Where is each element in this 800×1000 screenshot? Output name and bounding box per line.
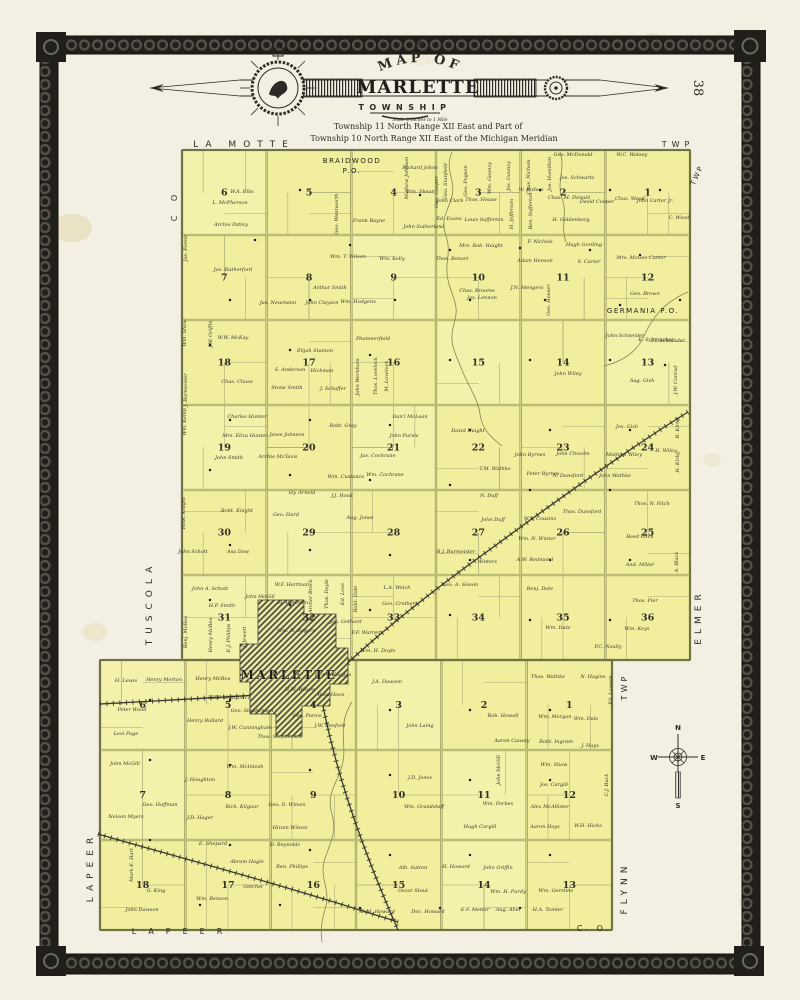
owner-name-label: Dan'l McLean [391, 414, 427, 420]
paper-stain [703, 453, 721, 467]
owner-name-label: John Duff [480, 517, 506, 523]
section-number: 36 [641, 613, 655, 624]
owner-name-label: Jos. Schwartz [559, 175, 595, 181]
owner-name-label: S. Anderson [275, 367, 306, 373]
section-number: 34 [472, 613, 486, 624]
owner-name-label: Aug. Abel [495, 907, 521, 913]
owner-name-label: W.W. McKay [218, 335, 249, 341]
house-dot [389, 424, 391, 426]
owner-name-label: Jos. Forest [183, 234, 189, 263]
owner-name-label: L.A. Welch [382, 585, 410, 591]
section-number: 8 [225, 790, 232, 801]
owner-name-label: Aug. Jones [346, 515, 374, 521]
owner-name-label: B. Kirby [675, 418, 681, 440]
owner-name-label: Thos. House [465, 197, 496, 203]
house-dot [529, 619, 531, 621]
owner-name-label: Stone Smith [271, 385, 302, 391]
edge-label: FLYNN [620, 862, 630, 915]
owner-name-label: John McGill [244, 594, 275, 600]
house-dot [529, 359, 531, 361]
section-number: 30 [218, 528, 232, 539]
section-number: 14 [556, 358, 570, 369]
owner-name-label: D.M. Howard [360, 909, 395, 915]
edge-label: C O [170, 189, 179, 221]
owner-name-label: A. Black [674, 552, 680, 574]
owner-name-label: Geo. Hurd [273, 512, 299, 518]
owner-name-label: John Laing [405, 723, 433, 729]
house-dot [149, 759, 151, 761]
owner-name-label: Wm. Keys [624, 626, 649, 632]
owner-name-label: Geo. Pierce [292, 713, 321, 719]
owner-name-label: Mrs. Rob. Haight [458, 243, 504, 249]
owner-name-label: Archie McTavis [257, 454, 297, 460]
owner-name-label: John Wathke [598, 473, 631, 479]
section-number: 9 [310, 790, 317, 801]
house-dot [619, 304, 621, 306]
section-number: 27 [472, 528, 485, 539]
owner-name-label: Henry Morton [145, 677, 182, 683]
owner-name-label: E.J. Phillips [226, 623, 232, 653]
owner-name-label: Thos. Lovelock [373, 357, 379, 395]
house-dot [609, 489, 611, 491]
owner-name-label: Wm. T. Wilson [330, 254, 366, 260]
house-dot [209, 599, 211, 601]
owner-name-label: Archie Pattey [213, 222, 248, 228]
house-dot [519, 247, 521, 249]
house-dot [609, 619, 611, 621]
house-dot [289, 474, 291, 476]
house-dot [609, 189, 611, 191]
house-dot [389, 854, 391, 856]
owner-name-label: Thos. Dunsford [563, 509, 602, 515]
owner-name-label: John Clark [436, 198, 464, 204]
house-dot [679, 299, 681, 301]
edge-label: LAPEER [86, 832, 96, 902]
owner-name-label: Mrs. Eliza Hunter [221, 433, 268, 439]
owner-name-label: Arthur Smith [312, 285, 346, 291]
owner-name-label: Jos. Hamilton [547, 157, 553, 192]
owner-name-label: J. Hays [580, 743, 599, 749]
owner-name-label: Mathew Johnson [404, 157, 410, 200]
owner-name-label: Ed. Lawson [608, 675, 614, 705]
owner-name-label: John Schneider [605, 333, 645, 339]
house-dot [664, 364, 666, 366]
section-number: 35 [556, 613, 569, 624]
owner-name-label: J. Burmeister [183, 373, 189, 408]
house-dot [309, 419, 311, 421]
owner-name-label: W.C. Watsey [617, 152, 648, 158]
section-number: 33 [387, 613, 400, 624]
owner-name-label: H. Lewis [114, 678, 138, 684]
owner-name-label: Elijah Stanton [296, 348, 333, 354]
section-number: 3 [395, 700, 402, 711]
owner-name-label: Mark E. Hart [129, 847, 135, 883]
owner-name-label: Aug. Gish [629, 378, 655, 384]
owner-name-label: J. Jewett [242, 626, 248, 649]
compass-north-label: N [675, 724, 681, 732]
section-number: 2 [481, 700, 488, 711]
owner-name-label: Archer Brock [308, 579, 314, 614]
owner-name-label: Geo. Houser [546, 284, 552, 316]
owner-name-label: Wm. Shear [406, 189, 435, 195]
owner-name-label: John Smith [214, 455, 243, 461]
owner-name-label: C. Wood [669, 215, 690, 221]
owner-name-label: H.W. Wilson [284, 687, 315, 693]
section-number: 5 [306, 188, 313, 199]
owner-name-label: W.F. Hartman [275, 582, 309, 588]
owner-name-label: Jas. Newmann [259, 300, 297, 306]
owner-name-label: John Carter Jr. [636, 198, 674, 204]
edge-label: ELMER [694, 589, 704, 644]
owner-name-label: Mrs. McGee Carter [615, 255, 666, 261]
house-dot [394, 299, 396, 301]
owner-name-label: Ross Hoon [316, 692, 344, 698]
owner-name-label: Chas. Chase [221, 379, 252, 385]
owner-name-label: John Schott [177, 549, 209, 555]
owner-name-label: Levi Page [113, 731, 139, 737]
section-number: 11 [477, 790, 490, 801]
owner-name-label: Asa Dow [226, 549, 250, 555]
section-number: 22 [472, 443, 485, 454]
house-dot [449, 614, 451, 616]
house-dot [209, 469, 211, 471]
edge-label: LA MOTTE [193, 140, 295, 150]
owner-name-label: Hickman [310, 368, 334, 374]
owner-name-label: J.N. Mengers [510, 285, 544, 291]
owner-name-label: Louis Sufferton [463, 217, 503, 223]
owner-name-label: H.P. Smith [208, 603, 235, 609]
owner-name-label: J.W. Conrad [673, 365, 679, 395]
owner-name-label: Mathias Wiley [605, 452, 642, 458]
section-number: 26 [556, 528, 570, 539]
house-dot [449, 484, 451, 486]
owner-name-label: David Haight [450, 428, 486, 434]
section-number: 4 [310, 700, 317, 711]
owner-name-label: J. Houghton [184, 777, 215, 783]
house-dot [549, 854, 551, 856]
owner-name-label: L. McPherson [211, 200, 247, 206]
owner-name-label: Wm. Cochrane [366, 472, 404, 478]
section-number: 19 [218, 443, 232, 454]
owner-name-label: J.D. Jones [407, 775, 432, 781]
owner-name-label: Thos. Doyle [324, 579, 330, 609]
owner-name-label: Wm. Kemp [182, 407, 188, 435]
owner-name-label: Wm. Shaw [541, 762, 569, 768]
owner-name-label: Plummerfield [355, 336, 390, 342]
owner-name-label: Geo. McDonald [554, 152, 593, 158]
house-dot [229, 299, 231, 301]
owner-name-label: Wm. Gerstine [539, 888, 574, 894]
owner-name-label: John Griffin [482, 865, 512, 871]
owner-name-label: J.A. Dawson [371, 679, 402, 685]
section-number: 13 [641, 358, 654, 369]
house-dot [149, 699, 151, 701]
page-number: 38 [690, 80, 705, 97]
section-number: 16 [307, 880, 321, 891]
owner-name-label: Rich. Kilgour [224, 804, 259, 810]
owner-name-label: Jas. Gothard [329, 619, 362, 625]
owner-name-label: Wm. Grandstaff [404, 804, 445, 810]
owner-name-label: T.M. Wathke [479, 466, 510, 472]
owner-name-label: Wm. N. Winter [518, 536, 556, 542]
owner-name-label: Ben. Phillips [275, 864, 308, 870]
section-number: 10 [472, 273, 486, 284]
owner-name-label: J. Schaffer [319, 386, 347, 392]
owner-name-label: Wm. Hodgens [340, 299, 376, 305]
house-dot [549, 429, 551, 431]
owner-name-label: Benj. McRea [183, 616, 189, 649]
house-dot [369, 609, 371, 611]
paper-stain [83, 623, 107, 641]
section-number: 24 [641, 443, 655, 454]
owner-name-label: Wm. H. Purdy [490, 889, 526, 895]
map-title-name: MARLETTE [356, 77, 479, 98]
owner-name-label: Hy. Arnold [288, 490, 316, 496]
right-tie-band [474, 79, 536, 97]
section-number: 8 [306, 273, 313, 284]
owner-name-label: Jas. Lennon [466, 295, 497, 301]
owner-name-label: N. Dunsford [552, 473, 584, 479]
post-office-label: BRAIDWOOD [323, 157, 381, 165]
owner-name-label: John Sutherland [402, 224, 444, 230]
house-dot [469, 854, 471, 856]
owner-name-label: H. Kirby [675, 451, 681, 473]
owner-name-label: F.F. Warren [351, 630, 381, 636]
owner-name-label: Geo. Stephenson [231, 708, 274, 714]
owner-name-label: W.S. Cousins [524, 516, 557, 522]
section-number: 12 [641, 273, 654, 284]
compass-west-label: W [650, 754, 658, 762]
owner-name-label: Adam Henson [516, 258, 552, 264]
section-number: 18 [218, 358, 232, 369]
owner-name-label: Frank Bayne [352, 218, 385, 224]
owner-name-label: John Byrnes [514, 452, 546, 458]
owner-name-label: Chas. M. Donald [548, 195, 590, 201]
owner-name-label: W.H. Hicks [574, 823, 602, 829]
owner-name-label: Robt. Knight [181, 496, 187, 530]
section-number: 17 [221, 880, 234, 891]
house-dot [469, 779, 471, 781]
house-dot [529, 489, 531, 491]
house-dot [389, 709, 391, 711]
section-number: 20 [302, 443, 316, 454]
house-dot [449, 249, 451, 251]
owner-name-label: Wm. Gounzy [487, 162, 493, 194]
owner-name-label: A.W. Redmond [516, 557, 554, 563]
owner-name-label: B.J. Burmeister [436, 549, 476, 555]
subtitle-line1: Township 11 North Range XII East and Par… [334, 122, 524, 131]
owner-name-label: John Wiley [553, 371, 581, 377]
owner-name-label: Jos. Rutherford [213, 267, 253, 273]
owner-name-label: Ben. Sufferton [528, 193, 534, 231]
owner-name-label: Alex McAllister [530, 804, 570, 810]
subtitle-line2: Township 10 North Range XII East of the … [310, 134, 557, 143]
section-number: 1 [566, 700, 573, 711]
township-parcel-blocks [100, 150, 690, 930]
edge-label: LAPEER [132, 927, 235, 936]
house-dot [549, 709, 551, 711]
owner-name-label: G. King [147, 888, 166, 894]
owner-name-label: H.A. Tomter [532, 907, 564, 913]
section-number: 14 [477, 880, 491, 891]
owner-name-label: Ed. Love [340, 583, 346, 606]
compass-east-label: E [701, 754, 706, 762]
owner-name-label: John McGill [109, 761, 140, 767]
owner-name-label: H. Jefferson [509, 199, 515, 230]
section-number: 7 [221, 273, 228, 284]
town-name-label: MARLETTE [241, 668, 338, 682]
owner-name-label: John A. Schott [191, 586, 229, 592]
house-dot [279, 904, 281, 906]
owner-name-label: Geo. Crothers [382, 601, 418, 607]
section-number: 1 [644, 188, 651, 199]
owner-name-label: Wm. Benson [196, 896, 228, 902]
owner-name-label: Thos. Stephenson [257, 734, 302, 740]
owner-name-label: Robt. Gray [328, 423, 357, 429]
owner-name-label: Charles Hunter [227, 414, 267, 420]
owner-name-label: Fr. Schneider [650, 338, 686, 344]
house-dot [389, 774, 391, 776]
owner-name-label: Aaron Hays [529, 824, 560, 830]
owner-name-label: Henry Bullard [186, 718, 223, 724]
owner-name-label: Aaron Causey [493, 738, 529, 744]
house-dot [199, 904, 201, 906]
house-dot [254, 239, 256, 241]
owner-name-label: Alb. Sutton [398, 865, 427, 871]
edge-label: TUSCOLA [145, 561, 155, 647]
owner-name-label: Thos. Bonart [436, 256, 470, 262]
owner-name-label: H. Goldenberg [551, 217, 589, 223]
owner-name-label: Chas. Nichols [526, 159, 532, 194]
edge-label: TWP [620, 674, 629, 702]
section-number: 31 [218, 613, 231, 624]
owner-name-label: And. Millar [625, 562, 655, 568]
section-number: 12 [563, 790, 576, 801]
owner-name-label: Wm. Forbes [483, 801, 514, 807]
section-number: 32 [302, 613, 315, 624]
house-dot [549, 779, 551, 781]
owner-name-label: Abram Hagle [229, 859, 264, 865]
section-number: 6 [221, 188, 228, 199]
owner-name-label: Jos. Gounzy [506, 161, 512, 192]
section-number: 11 [556, 273, 569, 284]
owner-name-label: H. Wiley [654, 448, 677, 454]
house-dot [149, 839, 151, 841]
owner-name-label: Geo. Hoffman [143, 802, 178, 808]
owner-name-label: M. Lovelock [384, 361, 390, 393]
section-number: 15 [472, 358, 485, 369]
owner-name-label: John Clayson [304, 300, 338, 306]
owner-name-label: John Chisolm [555, 451, 590, 457]
owner-name-label: Henry McRea [195, 676, 231, 682]
owner-name-label: H. Hartman [277, 600, 308, 606]
owner-name-label: Benj. Date [526, 586, 554, 592]
map-title-township: TOWNSHIP [358, 103, 451, 112]
owner-name-label: Robt. Ingram [538, 739, 573, 745]
owner-name-label: Hugh Gording [565, 242, 602, 248]
owner-name-label: Jos. Cargill [539, 782, 568, 788]
owner-name-label: Winters [477, 559, 497, 565]
owner-name-label: N. Hagins [579, 674, 606, 680]
owner-name-label: C.J. Buck [604, 774, 610, 797]
section-number: 9 [390, 273, 397, 284]
owner-name-label: Oscar Stout [398, 888, 429, 894]
owner-name-label: E.F. Metter [460, 907, 490, 913]
owner-name-label: Geo. D. Wilson [268, 802, 305, 808]
owner-name-label: N. Duff [479, 493, 499, 499]
owner-name-label: Geo. A. Sisson [442, 582, 478, 588]
owner-name-label: Wm. Shaw [182, 319, 188, 347]
owner-name-label: Hiram Wilson [272, 825, 308, 831]
house-dot [309, 549, 311, 551]
owner-name-label: Geo. Stanfield [443, 163, 449, 199]
owner-name-label: J.J. Hoist [330, 493, 354, 499]
house-dot [229, 844, 231, 846]
compass-south-label: S [675, 802, 680, 810]
house-dot [589, 249, 591, 251]
house-dot [299, 189, 301, 191]
owner-name-label: D. Reynolds [269, 842, 301, 848]
house-dot [309, 769, 311, 771]
owner-name-label: J.W. Cunningham [227, 725, 271, 731]
section-number: 21 [387, 443, 400, 454]
owner-name-label: John McGill [496, 755, 502, 786]
owner-name-label: Wm. Kelly [379, 256, 405, 262]
owner-name-label: J.W. Griffin [208, 321, 214, 349]
house-dot [349, 244, 351, 246]
house-dot [309, 849, 311, 851]
edge-label: C. O. [577, 924, 611, 933]
owner-name-label: John Dawson [124, 907, 158, 913]
house-dot [389, 554, 391, 556]
owner-name-label: Reed Fitch [625, 534, 654, 540]
owner-name-label: Hugh Cargill [463, 824, 497, 830]
owner-name-label: Ed. Evans [435, 216, 462, 222]
owner-name-label: Chas. Broome [459, 288, 495, 294]
house-dot [449, 359, 451, 361]
owner-name-label: Wm. H. Doyle [361, 648, 396, 654]
house-dot [469, 559, 471, 561]
section-number: 4 [390, 188, 397, 199]
owner-name-label: Wm. N. Rogers [277, 628, 316, 634]
owner-name-label: Thos. N. Fitch [634, 501, 670, 507]
house-dot [369, 354, 371, 356]
owner-name-label: Geo. Pogson [463, 165, 469, 196]
marlette-township-map: 38 PERE MARQUETTE R.R. 65432178910111218… [0, 0, 800, 1000]
section-number: 28 [387, 528, 401, 539]
house-dot [369, 479, 371, 481]
owner-name-label: S. Carter [578, 259, 602, 265]
owner-name-label: Nelson Myers [107, 814, 144, 820]
house-dot [289, 349, 291, 351]
owner-name-label: Wm. Dale [574, 716, 599, 722]
owner-name-label: Geo. Brown [630, 291, 660, 297]
house-dot [469, 709, 471, 711]
owner-name-label: H. Howard [441, 864, 470, 870]
owner-name-label: J.D. Hager [186, 815, 214, 821]
owner-name-label: Getchel [243, 884, 263, 890]
owner-name-label: J.W. Benford [314, 723, 346, 729]
owner-name-label: Wm. Morgan [539, 714, 572, 720]
house-dot [659, 189, 661, 191]
section-number: 10 [392, 790, 406, 801]
owner-name-label: Wm. Custance [328, 474, 365, 480]
house-dot [629, 559, 631, 561]
owner-name-label: Rob. Howell [487, 713, 519, 719]
owner-name-label: Robt. Knight [220, 508, 254, 514]
owner-name-label: P.C. Neally [593, 644, 621, 650]
owner-name-label: Robt. Dale [353, 586, 359, 614]
